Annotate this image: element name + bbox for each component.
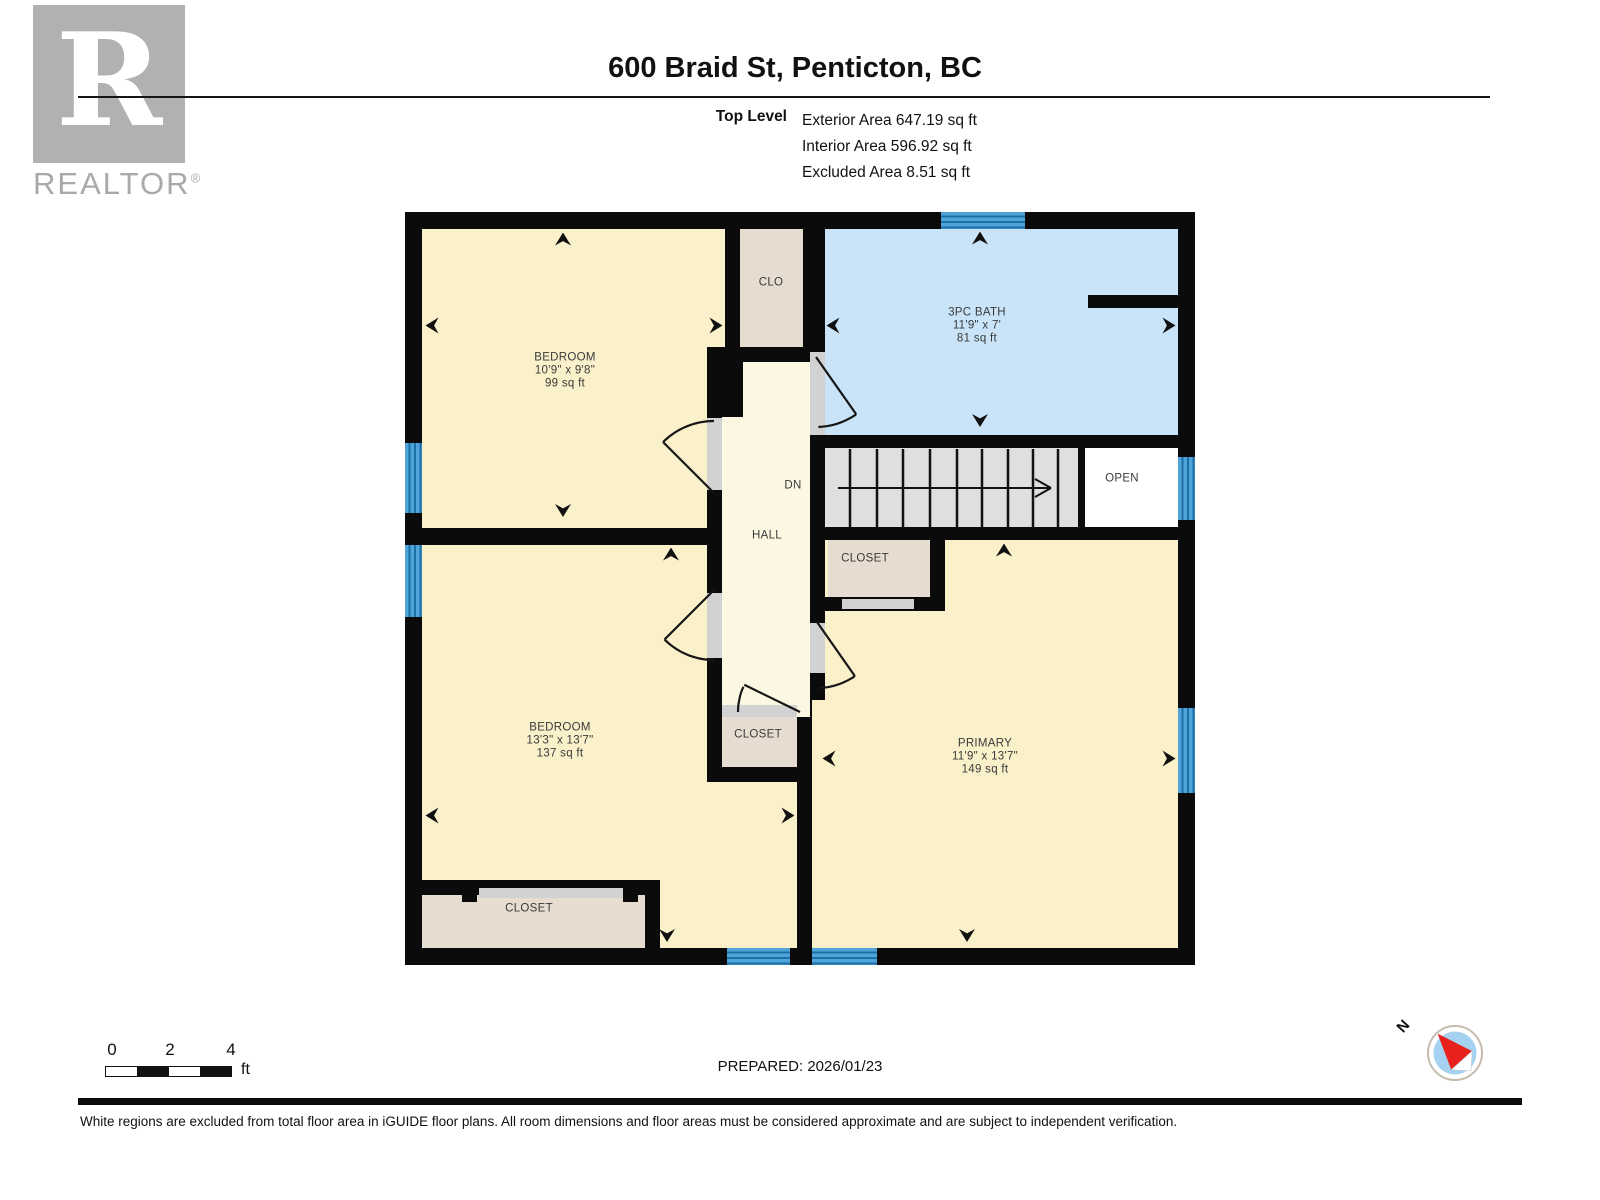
window <box>1178 457 1195 520</box>
wall <box>645 880 660 948</box>
wall <box>725 229 740 347</box>
wall <box>930 540 945 597</box>
room-label-primary: PRIMARY 11'9" x 13'7" 149 sq ft <box>952 738 1018 777</box>
title-divider <box>78 96 1490 98</box>
window <box>941 212 1025 229</box>
closet-bedroom-label: CLOSET <box>505 903 553 916</box>
compass-north-label: N <box>1393 1017 1413 1036</box>
closet-opening <box>722 705 797 717</box>
door-recess <box>707 593 722 658</box>
closet-under-stairs-label: CLOSET <box>841 553 889 566</box>
scale-tick-4: 4 <box>226 1040 235 1060</box>
wall <box>623 880 638 902</box>
wall <box>1078 448 1085 527</box>
disclaimer-text: White regions are excluded from total fl… <box>80 1114 1520 1129</box>
wall <box>707 767 812 782</box>
wall <box>707 347 810 362</box>
open-label: OPEN <box>1105 473 1139 486</box>
hall-label: HALL <box>752 530 782 543</box>
window <box>405 443 422 513</box>
prepared-date: PREPARED: 2026/01/23 <box>0 1058 1600 1075</box>
window <box>812 948 877 965</box>
exterior-area: Exterior Area 647.19 sq ft <box>802 108 977 134</box>
closet-opening <box>842 599 914 609</box>
scale-tick-0: 0 <box>107 1040 116 1060</box>
realtor-logo-text: REALTOR® <box>33 166 202 202</box>
scale-tick-2: 2 <box>165 1040 174 1060</box>
wall <box>422 528 722 545</box>
wall <box>722 362 743 417</box>
room-label-bedroom-tl: BEDROOM 10'9" x 9'8" 99 sq ft <box>534 352 596 391</box>
door-recess <box>707 418 722 490</box>
window <box>405 545 422 617</box>
door-recess <box>810 623 825 673</box>
door-recess <box>810 352 825 435</box>
room-open <box>1085 448 1178 527</box>
footer-divider <box>78 1098 1522 1105</box>
window <box>727 948 790 965</box>
wall <box>810 540 825 700</box>
excluded-area: Excluded Area 8.51 sq ft <box>802 160 977 186</box>
stairs-dn-label: DN <box>784 480 801 493</box>
room-stairs <box>825 448 1083 527</box>
page-title: 600 Braid St, Penticton, BC <box>0 52 1590 85</box>
room-label-bedroom-bl: BEDROOM 13'3" x 13'7" 137 sq ft <box>527 722 594 761</box>
compass-icon <box>1423 1021 1487 1085</box>
room-closet-hall <box>720 717 797 767</box>
interior-area: Interior Area 596.92 sq ft <box>802 134 977 160</box>
level-label: Top Level <box>600 108 787 126</box>
closet-hall-label: CLOSET <box>734 729 782 742</box>
room-closet-understairs <box>828 540 930 597</box>
window <box>1178 708 1195 793</box>
wall <box>462 880 477 902</box>
registered-mark: ® <box>191 171 203 186</box>
room-label-clo: CLO <box>759 277 784 290</box>
floor-plan: BEDROOM 10'9" x 9'8" 99 sq ft CLO 3PC BA… <box>405 212 1195 965</box>
closet-opening <box>479 888 623 898</box>
area-stats: Exterior Area 647.19 sq ft Interior Area… <box>802 108 977 186</box>
room-bedroom-bl-ext <box>707 782 797 948</box>
wall <box>1088 295 1178 308</box>
room-label-bath: 3PC BATH 11'9" x 7' 81 sq ft <box>948 307 1006 346</box>
floor-plan-page: { "header": { "title": "600 Braid St, Pe… <box>0 0 1600 1200</box>
